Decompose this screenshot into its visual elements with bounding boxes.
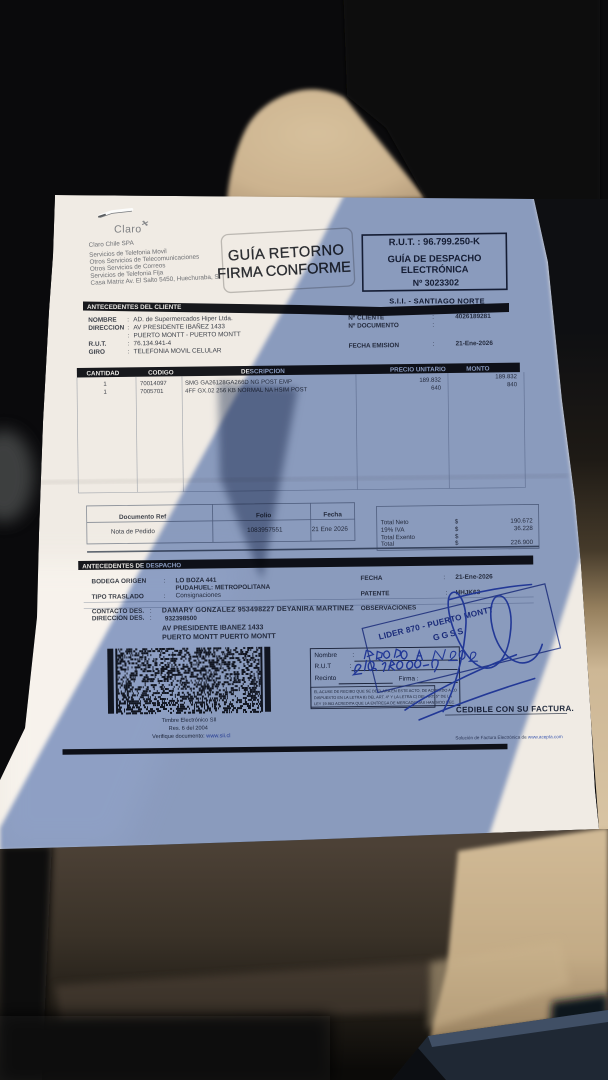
svg-text::: : — [127, 316, 129, 323]
svg-text:R.U.T.: R.U.T. — [89, 341, 107, 348]
svg-text:GIRO: GIRO — [89, 349, 105, 356]
svg-text:PUERTO MONTT - PUERTO MONTT: PUERTO MONTT - PUERTO MONTT — [133, 331, 241, 339]
svg-text:CANTIDAD: CANTIDAD — [86, 370, 119, 377]
svg-text::: : — [127, 332, 129, 339]
svg-text:7005701: 7005701 — [140, 389, 164, 395]
svg-text::: : — [128, 348, 130, 355]
svg-text:76.134.941-4: 76.134.941-4 — [133, 340, 171, 347]
svg-text:ANTECEDENTES DEL CLIENTE: ANTECEDENTES DEL CLIENTE — [87, 304, 181, 311]
svg-text:Documento Ref: Documento Ref — [119, 513, 167, 521]
svg-text:DIRECCION: DIRECCION — [88, 324, 124, 331]
svg-text:Nota de Pedido: Nota de Pedido — [111, 528, 156, 536]
svg-text::: : — [127, 340, 129, 347]
svg-text:70014097: 70014097 — [140, 381, 167, 387]
svg-text:AD. de Supermercados Hiper Ltd: AD. de Supermercados Hiper Ltda. — [133, 315, 233, 323]
svg-text::: : — [127, 324, 129, 331]
svg-text:Claro: Claro — [114, 223, 142, 235]
svg-text:CODIGO: CODIGO — [148, 369, 174, 376]
svg-text:NOMBRE: NOMBRE — [88, 317, 117, 324]
svg-text:TELEFONIA MOVIL CELULAR: TELEFONIA MOVIL CELULAR — [134, 347, 222, 355]
